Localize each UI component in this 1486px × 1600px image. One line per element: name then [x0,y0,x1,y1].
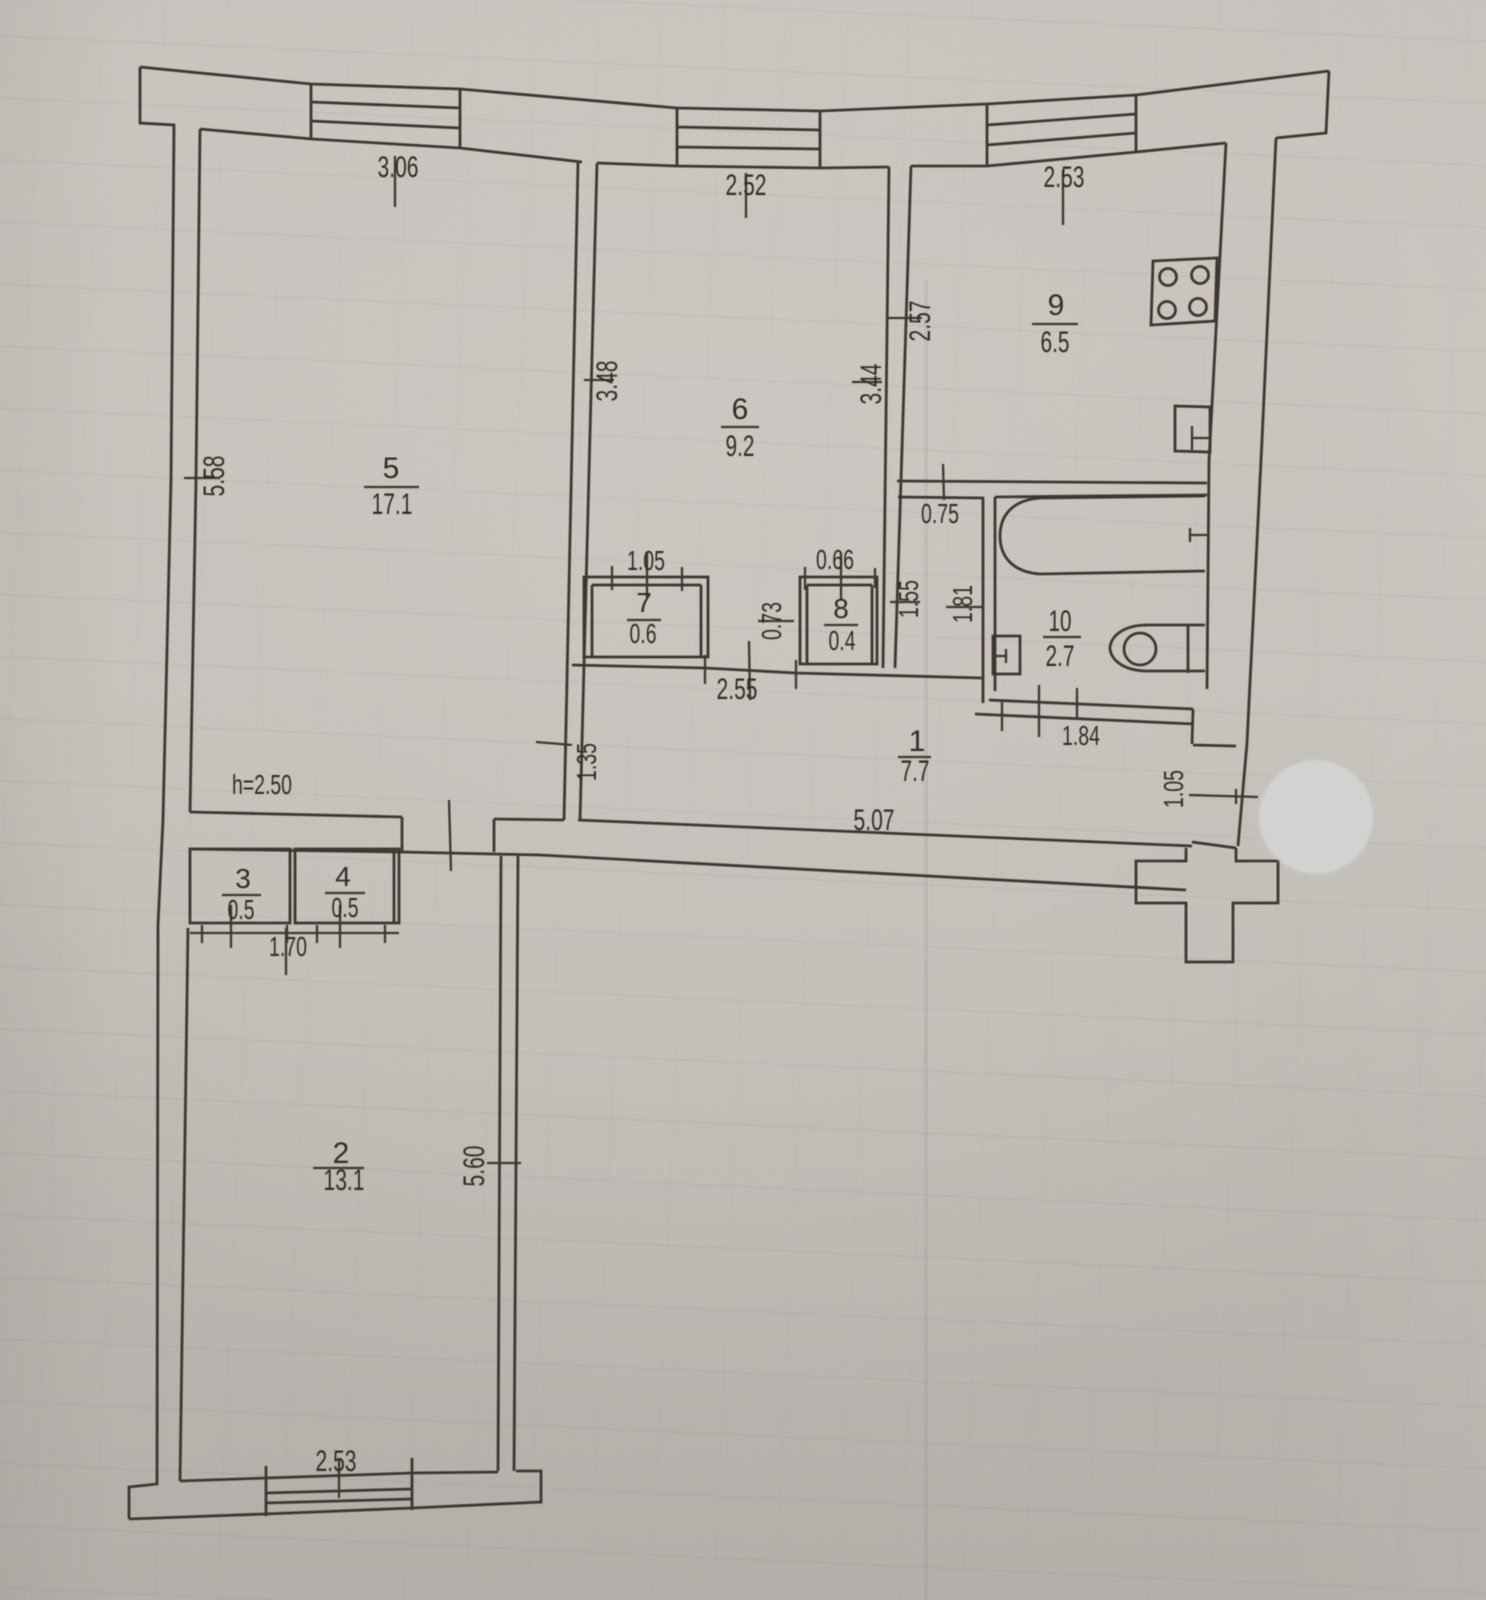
svg-text:1.05: 1.05 [1158,770,1189,808]
svg-text:0.6: 0.6 [630,618,657,649]
svg-text:6: 6 [732,393,749,426]
svg-text:5: 5 [383,452,400,485]
svg-text:0.4: 0.4 [829,625,856,656]
svg-text:2.52: 2.52 [726,169,767,202]
svg-text:2.53: 2.53 [316,1445,357,1478]
svg-text:3.48: 3.48 [591,361,624,402]
svg-text:6.5: 6.5 [1041,326,1070,359]
svg-text:8: 8 [833,593,849,624]
svg-text:4: 4 [335,861,351,892]
svg-text:5.58: 5.58 [198,456,231,497]
svg-text:1.35: 1.35 [571,743,602,781]
svg-text:7: 7 [636,587,652,618]
svg-text:3: 3 [235,863,251,894]
svg-text:h=2.50: h=2.50 [232,769,292,800]
svg-text:9: 9 [1048,289,1065,322]
svg-text:3.44: 3.44 [855,364,888,405]
svg-text:10: 10 [1049,605,1072,638]
svg-text:9.2: 9.2 [726,430,755,463]
svg-text:1.70: 1.70 [269,931,307,962]
svg-text:13.1: 13.1 [324,1164,365,1197]
svg-text:5.07: 5.07 [854,804,895,837]
svg-text:1.55: 1.55 [893,580,924,618]
svg-text:1.81: 1.81 [947,585,978,623]
svg-text:5.60: 5.60 [458,1146,491,1187]
svg-text:1.05: 1.05 [627,545,665,576]
svg-text:17.1: 17.1 [372,488,413,521]
svg-text:7.7: 7.7 [901,755,930,788]
svg-text:3.06: 3.06 [378,151,419,184]
svg-text:0.5: 0.5 [332,892,359,923]
svg-text:1.84: 1.84 [1062,720,1100,751]
svg-text:0.75: 0.75 [921,498,959,529]
svg-text:2.7: 2.7 [1046,640,1075,673]
svg-text:0.5: 0.5 [228,894,255,925]
svg-text:2.53: 2.53 [1044,161,1085,194]
svg-text:0.73: 0.73 [756,602,787,640]
svg-text:1: 1 [909,725,926,758]
svg-text:0.66: 0.66 [816,544,854,575]
svg-text:2.57: 2.57 [904,301,937,342]
svg-text:2.55: 2.55 [717,673,758,706]
